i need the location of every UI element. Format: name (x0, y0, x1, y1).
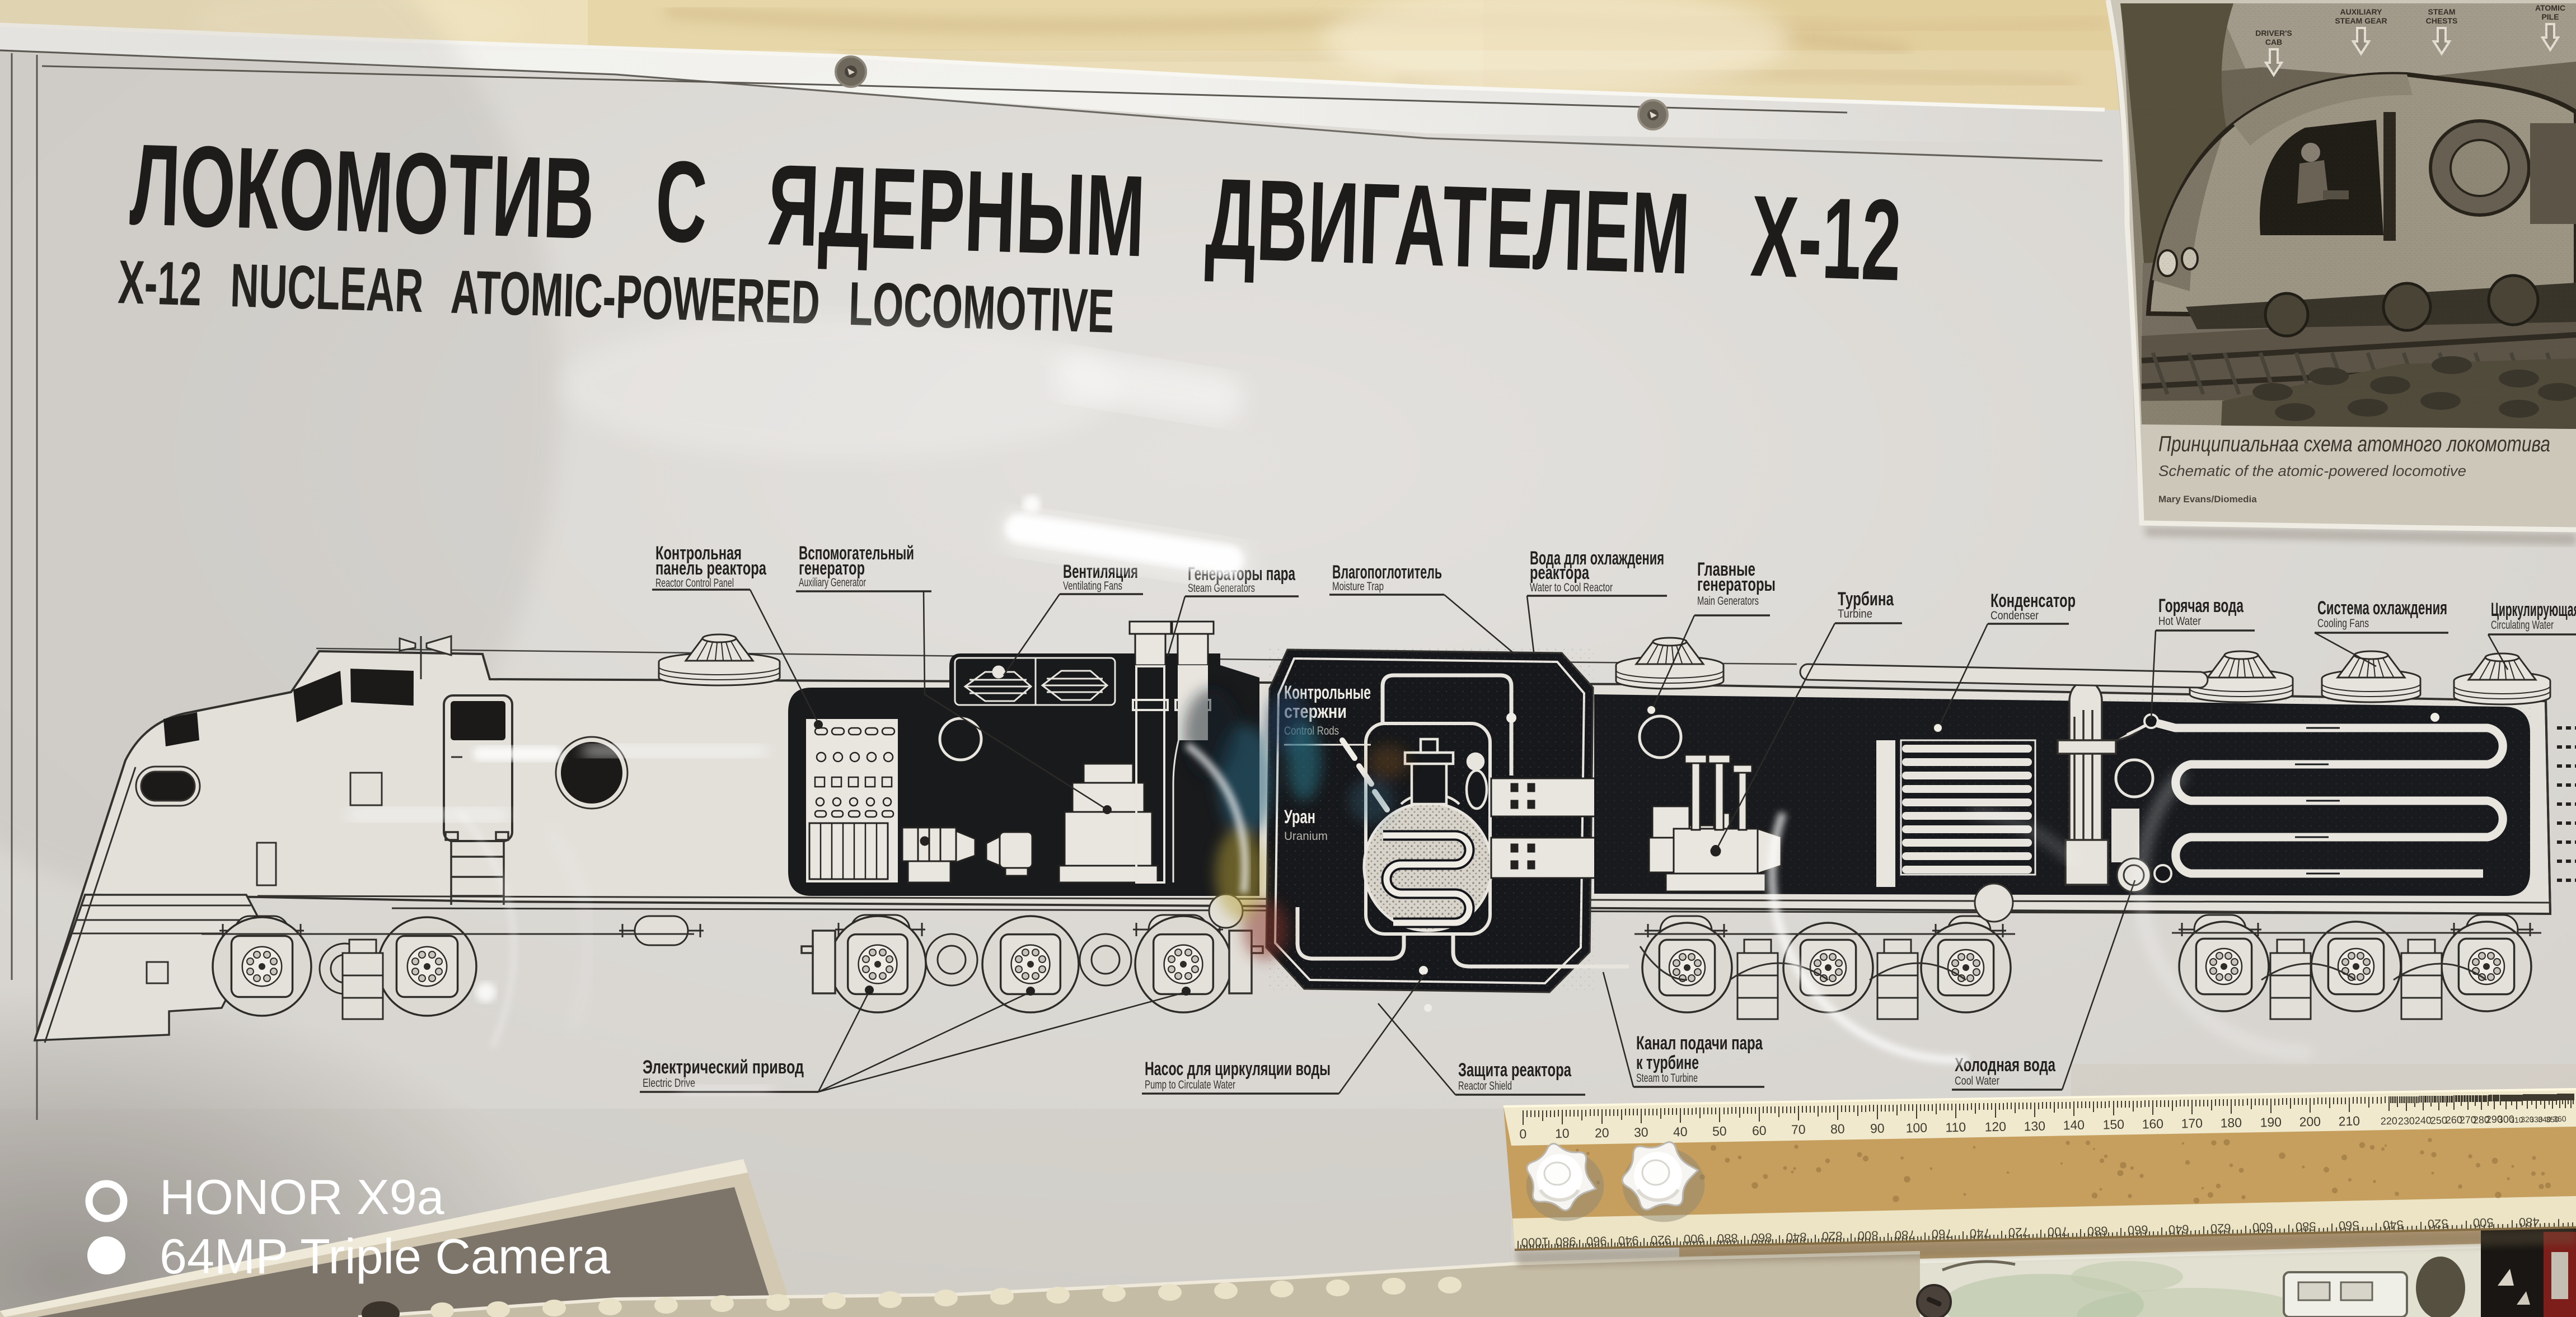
svg-text:140: 140 (2063, 1118, 2085, 1133)
svg-text:120: 120 (1984, 1119, 2006, 1134)
svg-text:760: 760 (1932, 1227, 1952, 1241)
svg-text:Turbine: Turbine (1838, 608, 1872, 620)
svg-text:500: 500 (2473, 1216, 2494, 1230)
svg-text:0: 0 (1519, 1127, 1526, 1141)
svg-text:540: 540 (2383, 1218, 2404, 1232)
svg-text:Pump to Circulate Water: Pump to Circulate Water (1145, 1078, 1235, 1091)
svg-text:Уран: Уран (1284, 806, 1315, 828)
svg-text:50: 50 (1712, 1124, 1727, 1139)
svg-text:Reactor Control Panel: Reactor Control Panel (655, 577, 734, 590)
svg-text:200: 200 (2299, 1114, 2321, 1129)
svg-text:панель реактора: панель реактора (655, 558, 767, 579)
svg-text:Электрический привод: Электрический привод (643, 1057, 804, 1078)
svg-text:Uranium: Uranium (1284, 830, 1328, 843)
svg-text:генераторы: генераторы (1697, 574, 1776, 595)
svg-text:64MP Triple Camera: 64MP Triple Camera (160, 1229, 610, 1284)
svg-text:150: 150 (2102, 1117, 2124, 1132)
svg-text:Moisture Trap: Moisture Trap (1332, 580, 1384, 593)
svg-text:Холодная вода: Холодная вода (1955, 1054, 2056, 1076)
svg-text:1000: 1000 (1521, 1235, 1549, 1249)
svg-text:Water to Cool Reactor: Water to Cool Reactor (1530, 581, 1613, 594)
svg-text:Main Generators: Main Generators (1697, 595, 1759, 608)
svg-text:80: 80 (1830, 1122, 1845, 1137)
svg-text:реактора: реактора (1530, 562, 1590, 583)
svg-text:Condenser: Condenser (1990, 609, 2039, 622)
svg-text:100: 100 (1905, 1120, 1927, 1136)
svg-text:70: 70 (1791, 1122, 1806, 1137)
svg-text:30: 30 (1634, 1125, 1648, 1140)
svg-text:Circulating Water: Circulating Water (2491, 619, 2554, 632)
svg-text:Cooling Fans: Cooling Fans (2317, 617, 2369, 630)
svg-text:520: 520 (2428, 1217, 2448, 1231)
svg-text:20: 20 (1595, 1125, 1609, 1141)
svg-text:230: 230 (2398, 1115, 2415, 1127)
svg-text:Cool Water: Cool Water (1955, 1075, 1999, 1087)
svg-text:Канал подачи пара: Канал подачи пара (1636, 1033, 1763, 1054)
svg-text:к турбине: к турбине (1636, 1052, 1699, 1073)
svg-text:Auxiliary Generator: Auxiliary Generator (799, 576, 866, 589)
svg-text:Насос для циркуляции воды: Насос для циркуляции воды (1145, 1058, 1331, 1080)
svg-text:10: 10 (1555, 1126, 1570, 1141)
svg-text:130: 130 (2024, 1119, 2045, 1134)
svg-text:240: 240 (2415, 1115, 2432, 1127)
svg-text:700: 700 (2048, 1225, 2068, 1239)
svg-text:180: 180 (2220, 1115, 2242, 1131)
svg-text:Hot Water: Hot Water (2158, 615, 2201, 628)
svg-text:250: 250 (2430, 1115, 2448, 1127)
svg-text:Ventilating Fans: Ventilating Fans (1063, 580, 1122, 592)
svg-text:740: 740 (1970, 1226, 1990, 1241)
svg-text:360: 360 (2553, 1114, 2566, 1124)
svg-text:Защита реактора: Защита реактора (1458, 1059, 1572, 1081)
svg-text:Steam to Turbine: Steam to Turbine (1636, 1072, 1698, 1085)
svg-text:720: 720 (2008, 1225, 2029, 1240)
svg-text:Горячая вода: Горячая вода (2158, 595, 2244, 617)
svg-text:110: 110 (1945, 1120, 1966, 1135)
svg-text:40: 40 (1673, 1124, 1688, 1139)
svg-text:170: 170 (2181, 1116, 2203, 1131)
svg-text:560: 560 (2339, 1218, 2359, 1233)
svg-text:HONOR X9a: HONOR X9a (160, 1169, 444, 1225)
svg-text:Schematic of the atomic-powere: Schematic of the atomic-powered locomoti… (2158, 463, 2466, 479)
svg-text:160: 160 (2142, 1117, 2163, 1132)
svg-text:Конденсатор: Конденсатор (1990, 590, 2076, 611)
svg-text:800: 800 (1858, 1229, 1879, 1243)
svg-text:Турбина: Турбина (1838, 589, 1894, 610)
svg-text:Система охлаждения: Система охлаждения (2317, 597, 2447, 619)
svg-text:210: 210 (2338, 1114, 2360, 1129)
svg-text:Reactor Shield: Reactor Shield (1458, 1080, 1512, 1092)
svg-text:Циркулирующая вода: Циркулирующая вода (2491, 599, 2576, 620)
svg-text:90: 90 (1870, 1121, 1885, 1136)
svg-text:220: 220 (2381, 1115, 2398, 1127)
svg-text:Mary Evans/Diomedia: Mary Evans/Diomedia (2158, 494, 2257, 505)
svg-text:190: 190 (2260, 1115, 2282, 1130)
svg-text:60: 60 (1752, 1123, 1767, 1138)
svg-text:Принципиальнаа схема атомного: Принципиальнаа схема атомного локомотива (2158, 432, 2550, 456)
svg-text:820: 820 (1822, 1229, 1843, 1244)
svg-text:780: 780 (1895, 1228, 1915, 1243)
